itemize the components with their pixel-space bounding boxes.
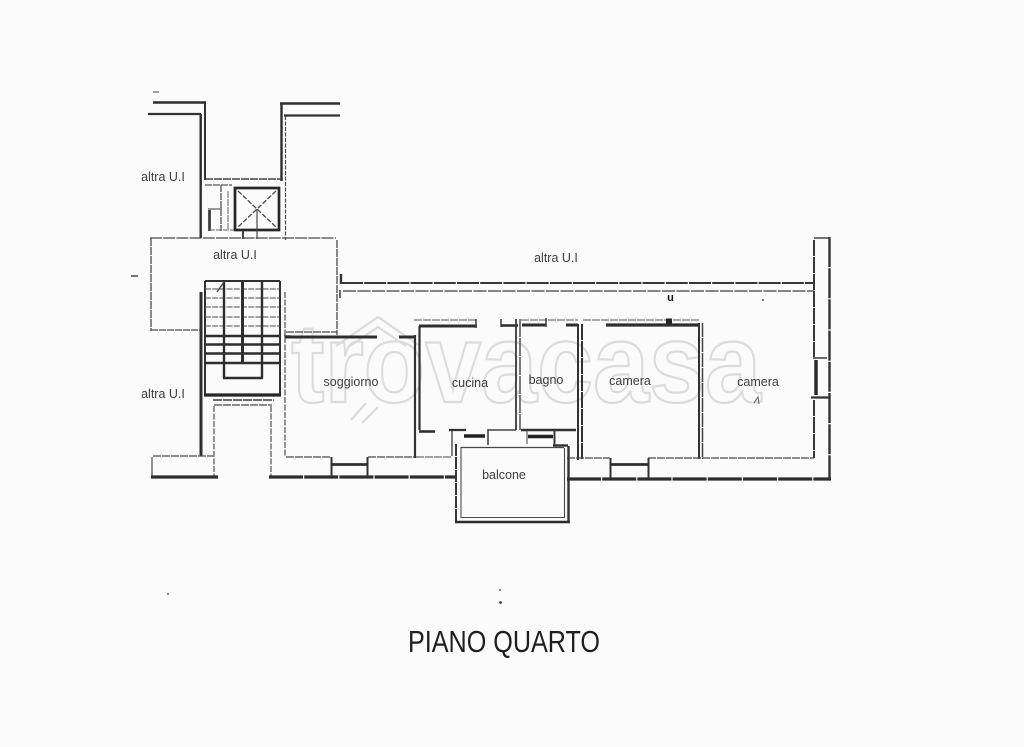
svg-text:camera: camera (609, 374, 651, 388)
svg-text:soggiorno: soggiorno (324, 375, 379, 389)
svg-text:altra U.I: altra U.I (534, 251, 578, 265)
svg-text:altra U.I: altra U.I (141, 170, 185, 184)
svg-text:camera: camera (737, 375, 779, 389)
svg-text:PIANO QUARTO: PIANO QUARTO (408, 624, 600, 659)
svg-text:balcone: balcone (482, 468, 526, 482)
svg-text:u: u (667, 292, 674, 304)
svg-text:cucina: cucina (452, 376, 488, 390)
svg-text:altra U.I: altra U.I (141, 387, 185, 401)
svg-text:bagno: bagno (529, 373, 564, 387)
svg-text:altra U.I: altra U.I (213, 248, 257, 262)
